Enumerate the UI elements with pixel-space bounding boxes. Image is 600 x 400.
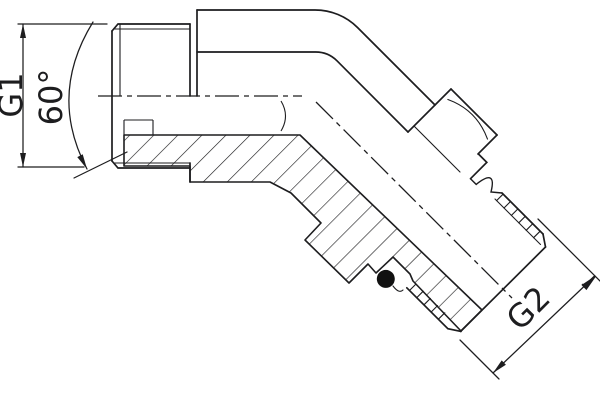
g2-label: G2 bbox=[499, 279, 558, 338]
arrow-up-icon bbox=[20, 24, 26, 38]
bore-lines bbox=[124, 101, 300, 135]
angle-label: 60° bbox=[32, 69, 70, 126]
angle-dimension bbox=[69, 22, 127, 178]
drawing-canvas: G1 60° G2 bbox=[0, 0, 600, 400]
arrow-down-icon bbox=[20, 153, 26, 167]
section-hatch bbox=[124, 135, 482, 331]
body-outline bbox=[197, 10, 435, 132]
g1-label: G1 bbox=[0, 72, 30, 117]
labels: G1 60° G2 bbox=[0, 69, 558, 338]
fitting-drawing: G1 60° G2 bbox=[0, 0, 600, 400]
neck-outline bbox=[471, 154, 503, 193]
oring-seal bbox=[377, 270, 395, 288]
